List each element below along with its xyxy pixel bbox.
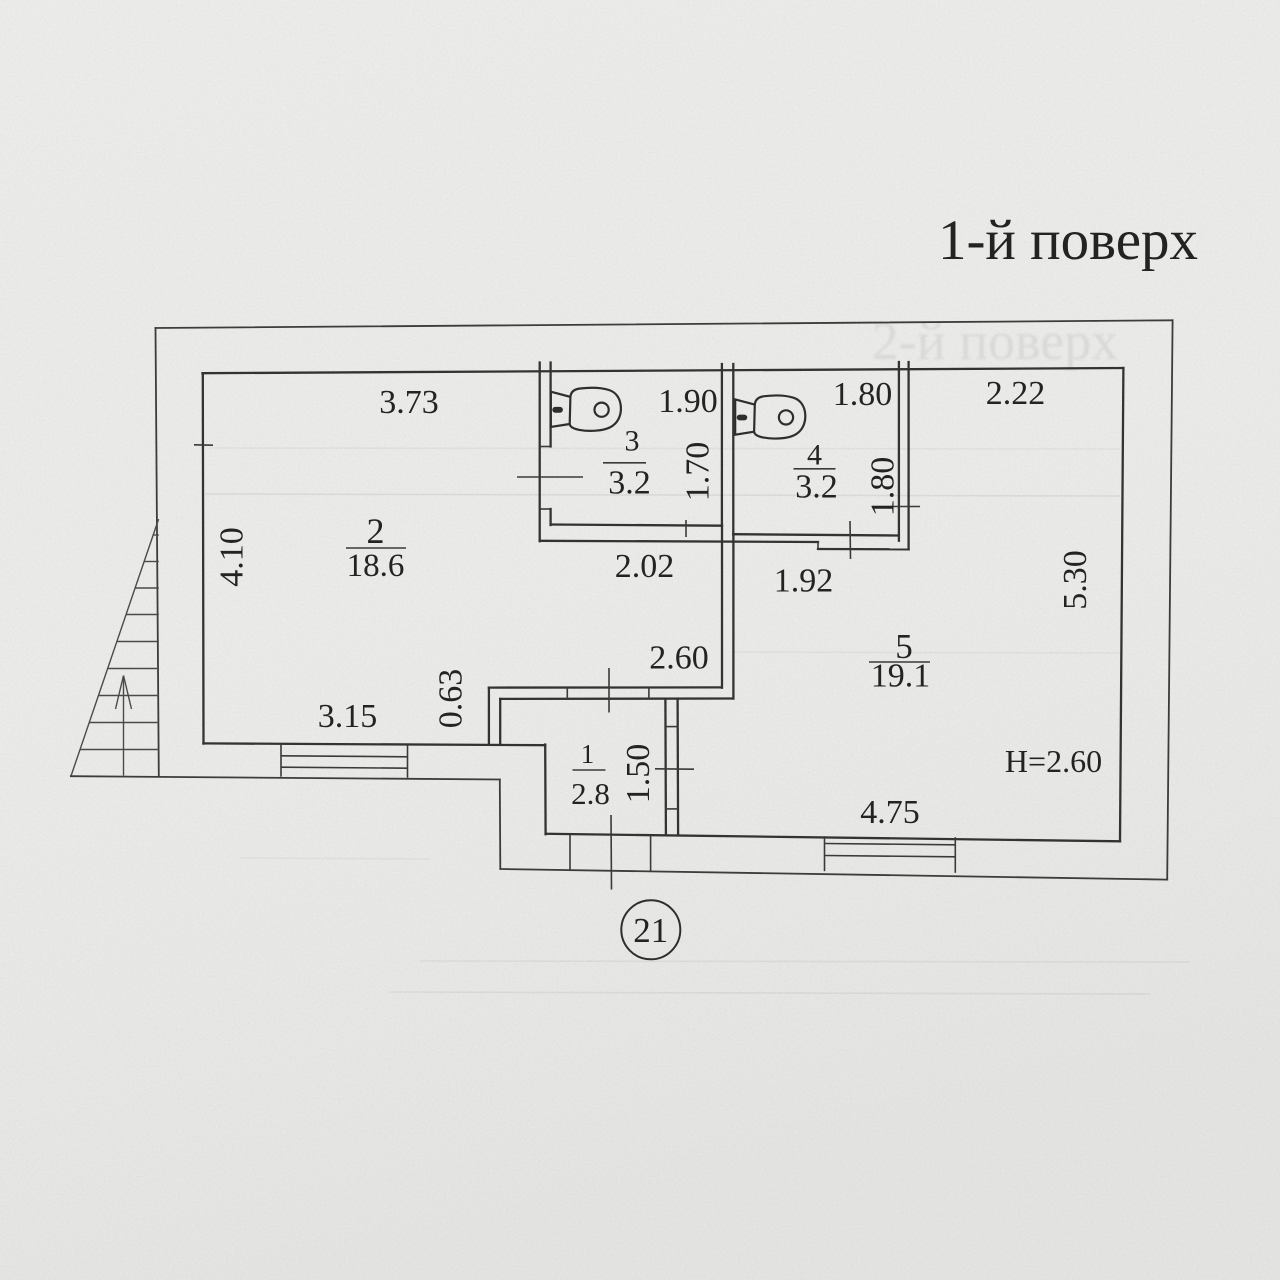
svg-text:1-й поверх: 1-й поверх	[938, 209, 1198, 272]
svg-text:2: 2	[367, 511, 385, 551]
svg-text:3.2: 3.2	[608, 465, 651, 502]
svg-text:3.15: 3.15	[318, 698, 378, 735]
svg-text:2.8: 2.8	[571, 776, 610, 811]
svg-text:4: 4	[807, 439, 822, 472]
svg-text:3.2: 3.2	[795, 469, 838, 506]
svg-text:0.63: 0.63	[433, 669, 470, 729]
svg-text:4.75: 4.75	[860, 794, 920, 831]
svg-text:2.02: 2.02	[615, 548, 675, 585]
svg-text:Н=2.60: Н=2.60	[1005, 743, 1102, 779]
svg-text:1.80: 1.80	[865, 457, 902, 517]
svg-text:1.50: 1.50	[620, 744, 657, 804]
svg-text:21: 21	[633, 911, 668, 950]
svg-text:1.90: 1.90	[658, 383, 718, 420]
svg-text:5.30: 5.30	[1057, 550, 1094, 610]
svg-text:1.70: 1.70	[680, 442, 717, 502]
svg-text:1: 1	[581, 739, 595, 769]
svg-text:18.6: 18.6	[347, 548, 405, 584]
svg-text:2.60: 2.60	[649, 640, 709, 677]
svg-text:3: 3	[625, 425, 640, 458]
svg-text:2.22: 2.22	[986, 375, 1046, 412]
svg-text:1.92: 1.92	[774, 563, 834, 600]
svg-text:1.80: 1.80	[833, 376, 893, 413]
svg-text:4.10: 4.10	[214, 527, 251, 587]
svg-text:19.1: 19.1	[871, 658, 931, 695]
svg-text:3.73: 3.73	[379, 384, 439, 421]
